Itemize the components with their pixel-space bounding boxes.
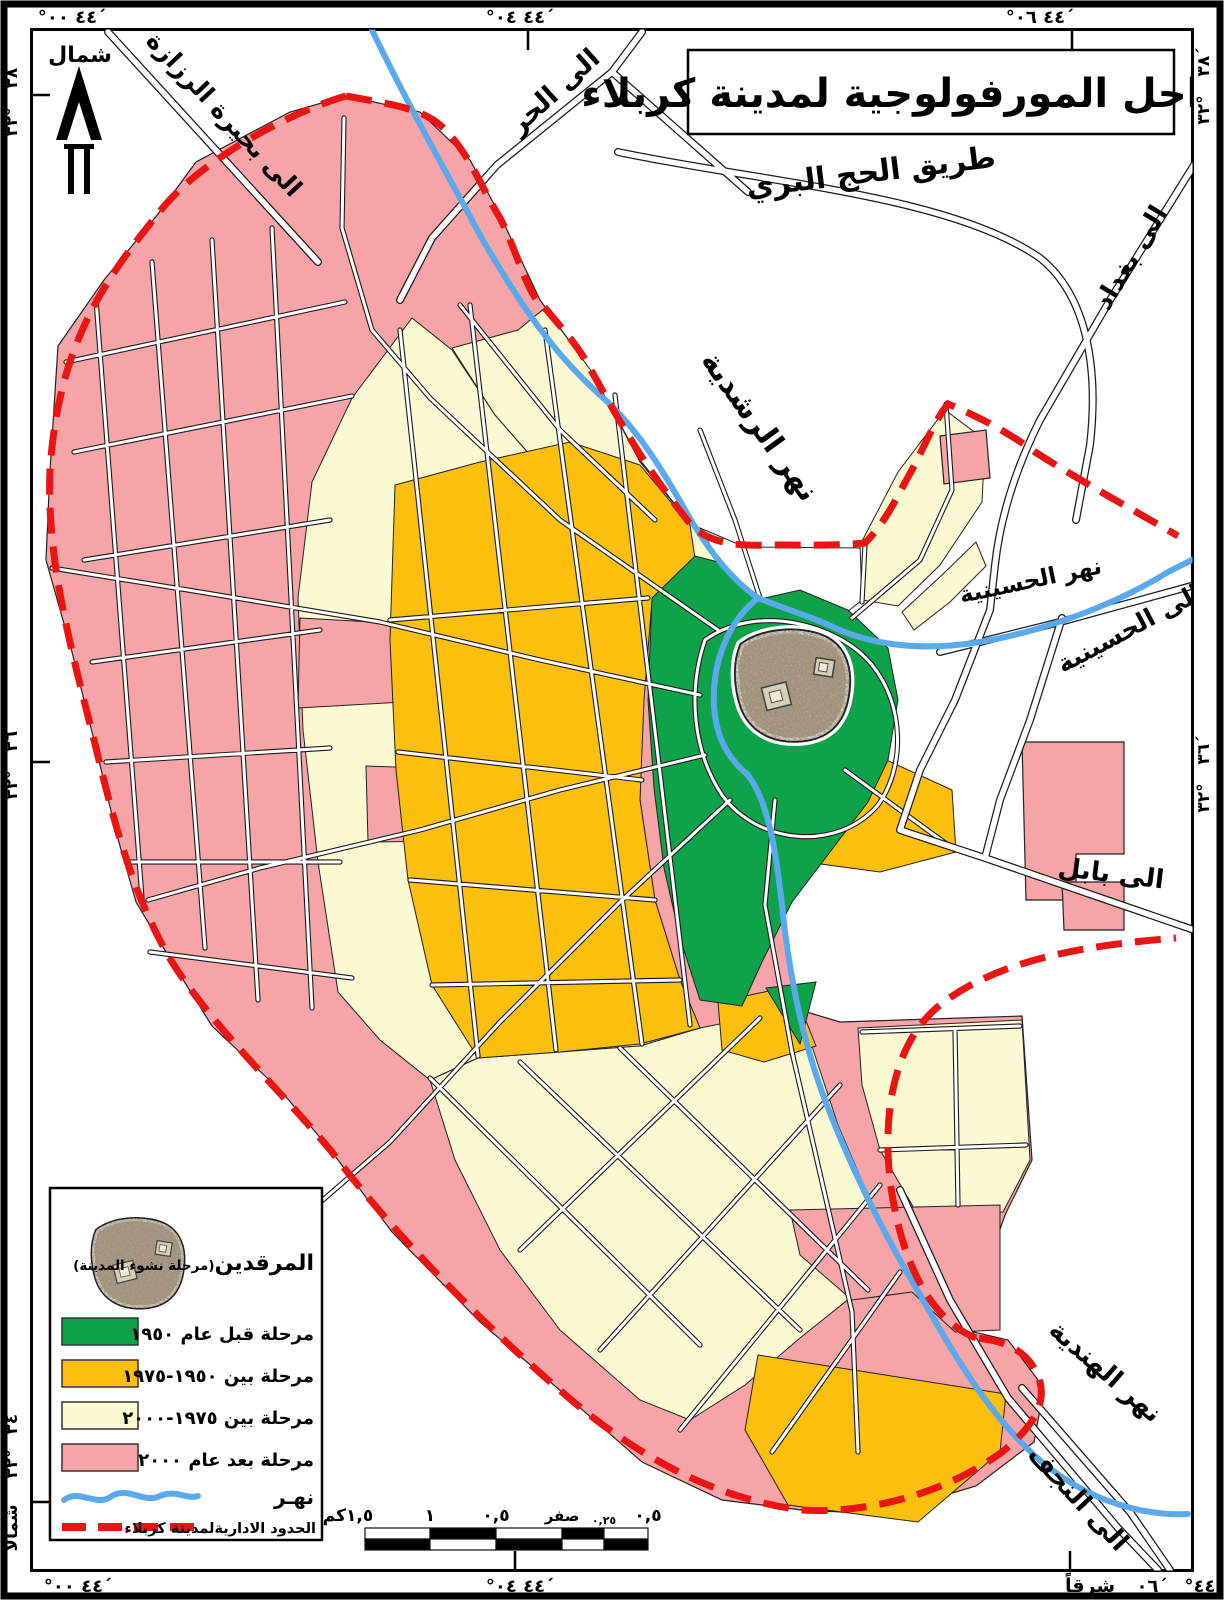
map-title: المراحل المورفولوجية لمدينة كربلاء bbox=[581, 71, 1224, 117]
coord-left-bot-deg: ٣٢° bbox=[2, 1449, 22, 1478]
coord-bottom-east-word: شرقاً bbox=[1065, 1572, 1115, 1597]
coord-right-mid-deg: ٣٢° bbox=[1194, 783, 1214, 812]
shrine-satellite-image bbox=[735, 629, 850, 741]
legend-label-1950-1975: مرحلة بين ١٩٥٠-١٩٧٥ bbox=[122, 1366, 314, 1387]
legend-label-pre1950: مرحلة قبل عام ١٩٥٠ bbox=[130, 1324, 314, 1345]
coord-top-left: °٤٤ ٠٠´ bbox=[38, 7, 106, 28]
scale-label-zero: صفر bbox=[544, 1507, 580, 1525]
legend-label-1975-2000: مرحلة بين ١٩٧٥-٢٠٠٠ bbox=[122, 1408, 314, 1429]
coord-top-right: °٤٤ ٠٦´ bbox=[1006, 7, 1074, 28]
coord-left-bot-min: ٣٤´ bbox=[2, 1405, 22, 1434]
coord-left-mid-min: ٣٦´ bbox=[2, 722, 22, 751]
map-canvas: الى الحر طريق الحج البري الى بغداد الى ب… bbox=[0, 0, 1224, 1600]
coord-right-top-min: ٣٨´ bbox=[1194, 47, 1214, 76]
coord-bottom-east-deg: °٤٤ bbox=[1185, 1576, 1216, 1597]
coord-left-top-min: ٣٨´ bbox=[2, 59, 22, 88]
coord-left-top-deg: ٣٢° bbox=[2, 107, 22, 136]
coord-top-mid: °٤٤ ٠٤´ bbox=[486, 7, 554, 28]
coord-bottom-east-min: ٠٦´ bbox=[1137, 1576, 1168, 1597]
legend-swatch-pink bbox=[62, 1444, 138, 1471]
scale-label-1-5km: ١,٥كم bbox=[323, 1506, 373, 1526]
scale-label-0-5: ٠,٥ bbox=[482, 1506, 509, 1526]
coord-left-north-word: شمالاً bbox=[0, 1504, 22, 1552]
legend-label-post2000: مرحلة بعد عام ٢٠٠٠ bbox=[138, 1450, 314, 1471]
coord-right-top-deg: ٣٢° bbox=[1194, 95, 1214, 124]
north-arrow-label: شمال bbox=[48, 43, 112, 68]
coord-bottom-left: °٤٤ ٠٠´ bbox=[44, 1576, 112, 1597]
coord-right-mid-min: ٣٦´ bbox=[1194, 735, 1214, 764]
legend-river-label: نهـر bbox=[273, 1485, 314, 1509]
legend-swatch-green bbox=[62, 1318, 138, 1345]
legend: المرقدين(مرحلة نشوء المدينة) مرحلة قبل ع… bbox=[50, 1188, 322, 1540]
scale-label-0-5b: ٠,٥ bbox=[634, 1506, 661, 1526]
scale-label-0-25: ٠,٢٥ bbox=[592, 1514, 617, 1527]
scale-bar-bands bbox=[365, 1528, 648, 1550]
coord-bottom-mid: °٤٤ ٠٤´ bbox=[486, 1576, 554, 1597]
karbala-morphology-map: الى الحر طريق الحج البري الى بغداد الى ب… bbox=[0, 0, 1224, 1600]
scale-label-1: ١ bbox=[425, 1506, 435, 1526]
legend-boundary-label: الحدود الاداريةلمدينة كربلاء bbox=[124, 1521, 316, 1537]
coord-left-mid-deg: ٣٢° bbox=[2, 770, 22, 799]
